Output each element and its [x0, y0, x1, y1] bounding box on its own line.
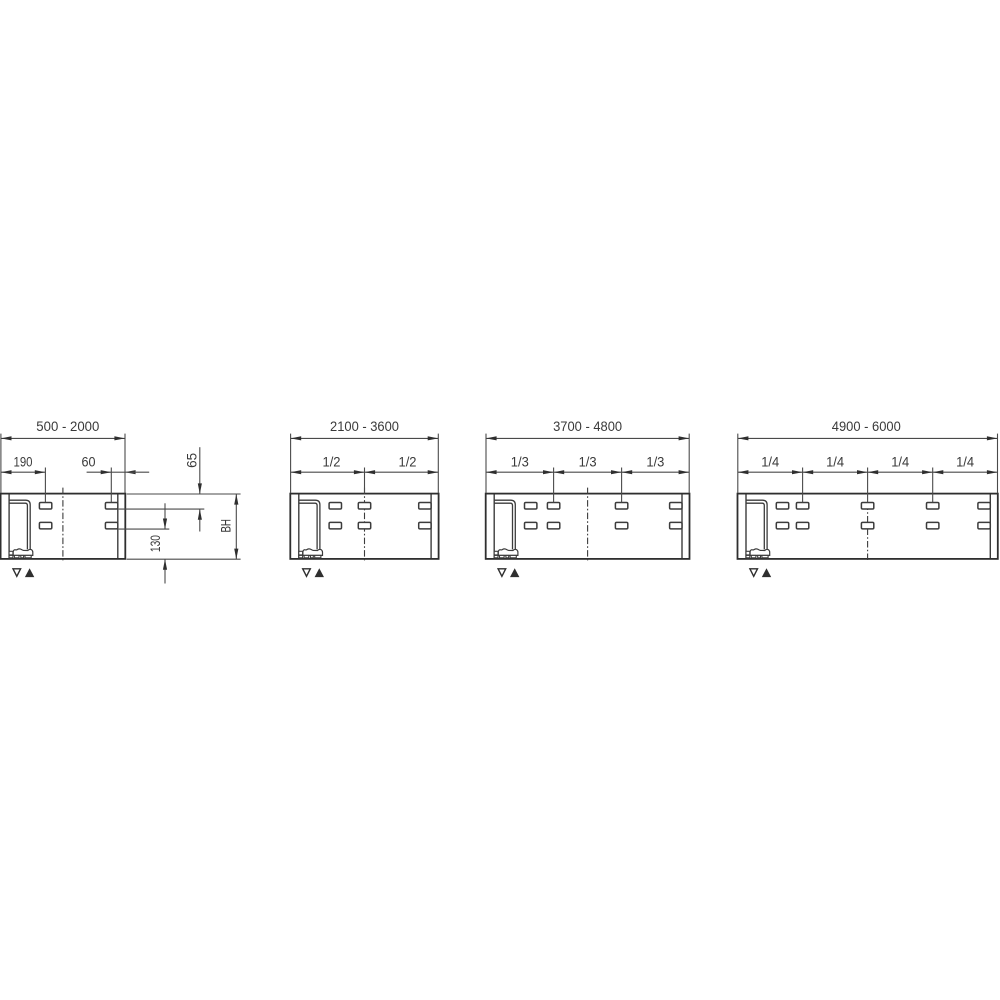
svg-text:2100 - 3600: 2100 - 3600 — [330, 419, 399, 435]
svg-text:1/4: 1/4 — [761, 454, 779, 470]
svg-text:1/4: 1/4 — [956, 454, 974, 470]
svg-text:3700 - 4800: 3700 - 4800 — [553, 419, 622, 435]
svg-text:130: 130 — [148, 535, 164, 552]
svg-text:1/4: 1/4 — [891, 454, 909, 470]
svg-text:4900 - 6000: 4900 - 6000 — [832, 419, 901, 435]
svg-text:1/2: 1/2 — [323, 454, 341, 470]
svg-text:60: 60 — [82, 454, 96, 470]
svg-text:1/3: 1/3 — [646, 454, 664, 470]
svg-text:1/3: 1/3 — [511, 454, 529, 470]
svg-text:BH: BH — [219, 519, 235, 533]
svg-text:500 - 2000: 500 - 2000 — [36, 419, 99, 435]
svg-text:1/3: 1/3 — [579, 454, 597, 470]
svg-text:65: 65 — [184, 453, 200, 468]
svg-text:1/4: 1/4 — [826, 454, 844, 470]
svg-text:1/2: 1/2 — [399, 454, 417, 470]
svg-text:190: 190 — [14, 454, 33, 470]
